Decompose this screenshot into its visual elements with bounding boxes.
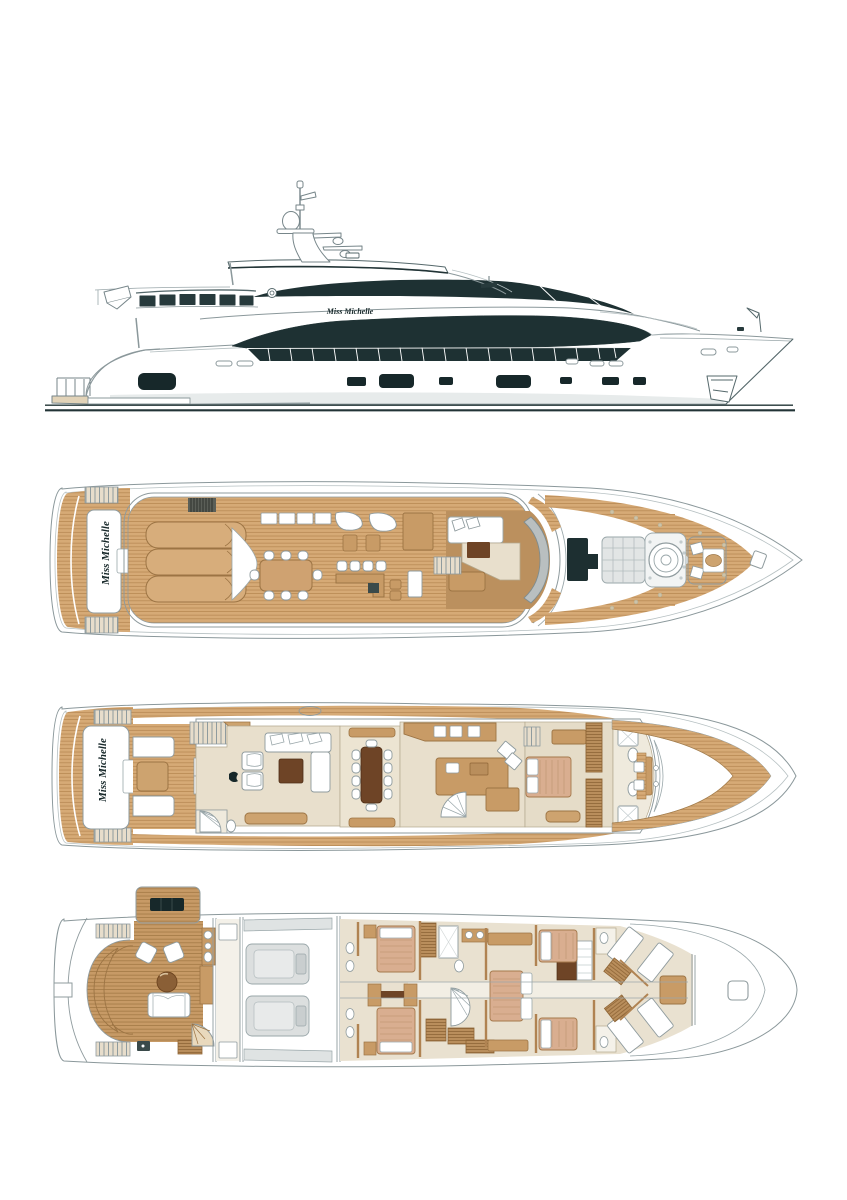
svg-text:Miss Michelle: Miss Michelle bbox=[97, 738, 109, 803]
svg-text:Miss Michelle: Miss Michelle bbox=[100, 521, 112, 586]
svg-text:Miss Michelle: Miss Michelle bbox=[326, 307, 374, 316]
